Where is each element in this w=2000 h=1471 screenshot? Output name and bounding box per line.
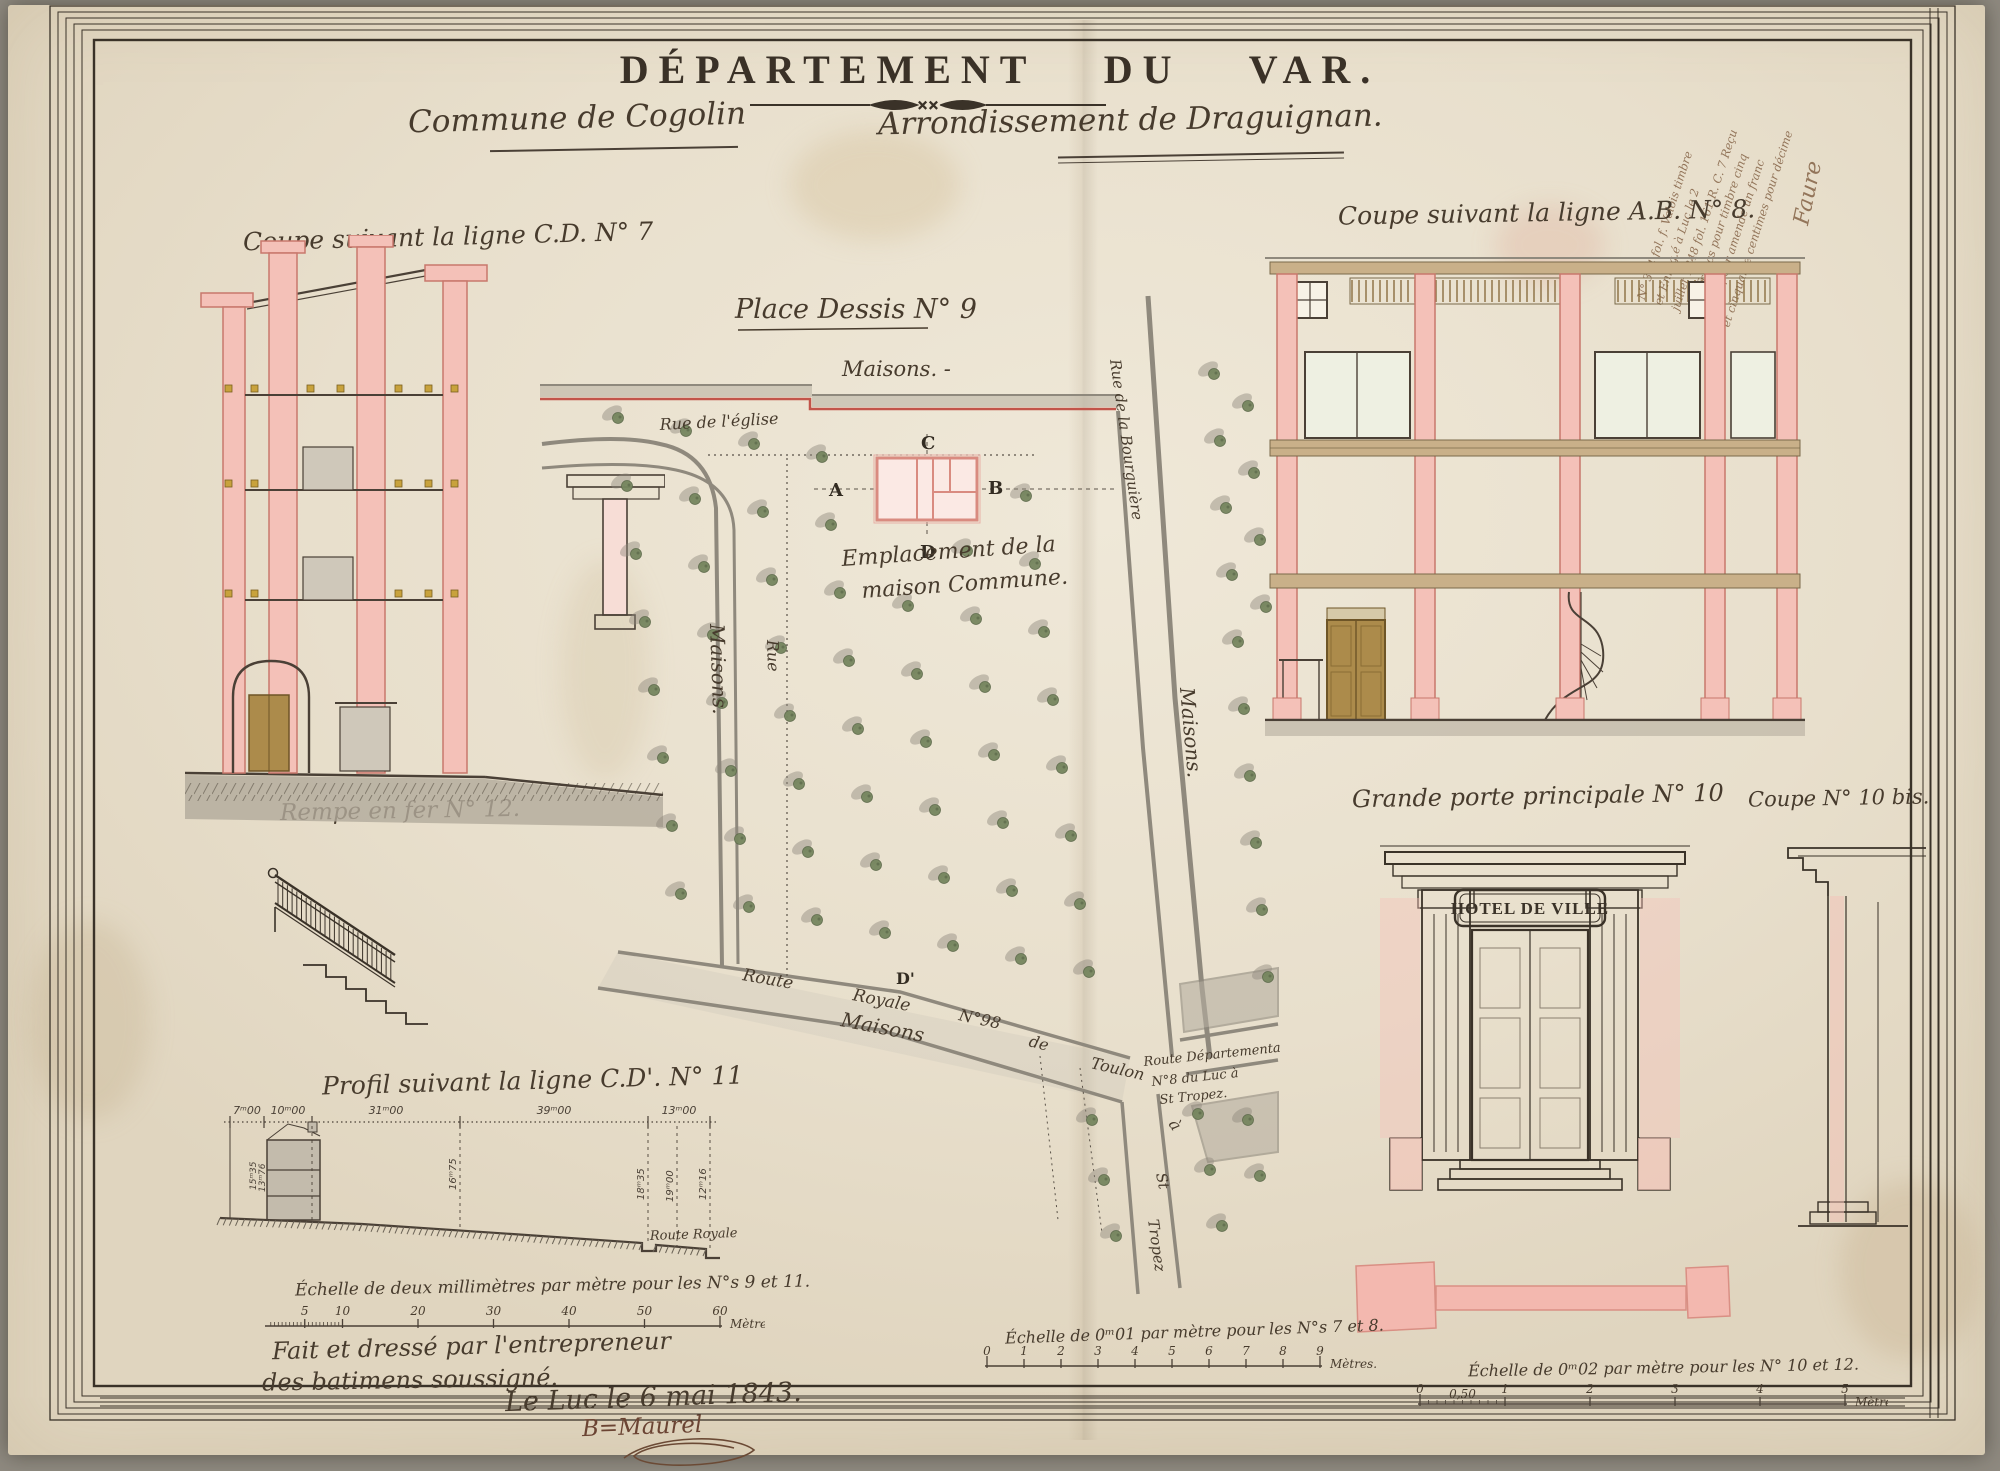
tree [1039, 627, 1050, 638]
tree [744, 902, 755, 913]
tree [1227, 570, 1238, 581]
tree [640, 617, 651, 628]
joist-square [225, 480, 232, 487]
scale-unit: Mètres. [1854, 1395, 1888, 1409]
tree [1111, 1231, 1122, 1242]
scale-tick-label: 30 [486, 1304, 502, 1318]
iron-railing-drawing [248, 832, 433, 1027]
tree [803, 847, 814, 858]
scale-tick-label: 4 [1755, 1382, 1764, 1396]
tree [767, 575, 778, 586]
left-pilaster [1418, 890, 1474, 1160]
tree [903, 601, 914, 612]
tree [613, 413, 624, 424]
tree [930, 805, 941, 816]
tree [631, 549, 642, 560]
foundation-plan-drawing [1348, 1248, 1778, 1348]
joist-square [251, 590, 258, 597]
dim-label-v: 19ᵐ00 [665, 1170, 676, 1202]
scale-tick-label: 2 [1585, 1382, 1594, 1396]
scale-tick-label: 5 [1841, 1382, 1849, 1396]
dim-label-v: 12ᵐ16 [698, 1168, 709, 1200]
scale-tick-label: 60 [712, 1304, 728, 1318]
dim-label: 31ᵐ00 [369, 1104, 404, 1117]
tree [912, 669, 923, 680]
dim-label-v: 16ᵐ75 [448, 1158, 459, 1190]
scale-tick-label: 40 [560, 1304, 577, 1318]
right-pilaster [1586, 890, 1642, 1160]
tree [921, 737, 932, 748]
tree [1057, 763, 1068, 774]
tree [1263, 972, 1274, 983]
tree [1255, 535, 1266, 546]
scale-tick-label: 5 [1168, 1344, 1176, 1358]
tree [871, 860, 882, 871]
tree [1075, 899, 1086, 910]
dim-label: 7ᵐ00 [233, 1104, 261, 1117]
building-footprint [874, 455, 980, 523]
ground-shadow [1265, 722, 1805, 736]
emplacement-line2: maison Commune. [861, 565, 1069, 604]
page-title: DÉPARTEMENT DU VAR. [0, 46, 2000, 93]
scale-tick-label: 8 [1279, 1344, 1287, 1358]
tree [1048, 695, 1059, 706]
tree [699, 562, 710, 573]
tree [785, 711, 796, 722]
scale-tick-label: 50 [637, 1304, 653, 1318]
tree [835, 588, 846, 599]
scale-tick-label: 9 [1316, 1344, 1324, 1358]
joist-square [395, 385, 402, 392]
tree [948, 941, 959, 952]
tree [1016, 954, 1027, 965]
tree [676, 889, 687, 900]
tree [1084, 967, 1095, 978]
tree [794, 779, 805, 790]
joist-square [225, 590, 232, 597]
tree [1221, 503, 1232, 514]
tree [726, 766, 737, 777]
pink-wash [1830, 896, 1844, 1222]
tree [649, 685, 660, 696]
tree [1261, 602, 1272, 613]
tree [1239, 704, 1250, 715]
tree [1251, 838, 1262, 849]
scale-tick-label: 0 [983, 1344, 991, 1358]
rue-eglise-label: Rue de l'église [658, 409, 779, 434]
dim-label: 13ᵐ00 [662, 1104, 697, 1117]
scale-tick-label: 4 [1130, 1344, 1139, 1358]
marker-d-prime: D' [896, 969, 915, 988]
joist-square [451, 590, 458, 597]
scale-half-label: 0,50 [1449, 1387, 1476, 1401]
roof-band [1270, 262, 1800, 274]
door-section-drawing [1758, 842, 1933, 1262]
joist-square [451, 480, 458, 487]
dim-label-v: 18ᵐ35 [636, 1168, 647, 1200]
rue-left-label: Rue [763, 638, 783, 671]
label-coupe10bis: Coupe N° 10 bis. [1748, 784, 1930, 811]
tree [817, 452, 828, 463]
tree [1099, 1175, 1110, 1186]
joist-square [425, 590, 432, 597]
maisons-top-label: Maisons. - [841, 357, 951, 381]
tree [998, 818, 1009, 829]
scale-bar-7-8: 0123456789Mètres. [975, 1340, 1395, 1380]
maisons-left-label: Maisons. [705, 622, 732, 714]
marker-b: B [988, 478, 1003, 499]
joist-square [395, 590, 402, 597]
dim-label-v: 13ᵐ76 [258, 1163, 268, 1192]
main-door-elevation-drawing: HOTEL DE VILLE [1360, 838, 1700, 1258]
tree [735, 834, 746, 845]
dim-label: 39ᵐ00 [537, 1104, 572, 1117]
tree [1007, 886, 1018, 897]
scale-tick-label: 3 [1094, 1344, 1102, 1358]
tree [1243, 401, 1254, 412]
tree [1257, 905, 1268, 916]
tree [1233, 637, 1244, 648]
rue-bourguiere-label: Rue de la Bourguière [1106, 357, 1147, 521]
tree [812, 915, 823, 926]
tree [880, 928, 891, 939]
tree [690, 494, 701, 505]
profile-cd11-drawing: 7ᵐ00 10ᵐ00 31ᵐ00 39ᵐ00 13ᵐ00 15ᵐ35 13ᵐ76… [212, 1078, 752, 1293]
scale-bar-10-12: 0123450,50Mètres. [1408, 1378, 1888, 1418]
scale-tick-label: 6 [1205, 1344, 1213, 1358]
tree [1245, 771, 1256, 782]
tree [758, 507, 769, 518]
tree [1087, 1115, 1098, 1126]
scale-unit: Mètres. [729, 1317, 765, 1331]
marker-c: C [921, 433, 935, 454]
pink-base [1390, 1138, 1422, 1190]
tree [980, 682, 991, 693]
tree [667, 821, 678, 832]
tree [1243, 1115, 1254, 1126]
joist-square [451, 385, 458, 392]
plan-title: Place Dessis N° 9 [734, 294, 977, 325]
route-word: Tropez [1144, 1218, 1169, 1273]
walls [201, 265, 487, 773]
dim-label: 10ᵐ00 [271, 1104, 306, 1117]
tree [1205, 1165, 1216, 1176]
joist-square [425, 480, 432, 487]
tree [844, 656, 855, 667]
joist-square [251, 385, 258, 392]
scale-tick-label: 1 [1020, 1344, 1028, 1358]
tree [971, 614, 982, 625]
scale-tick-label: 2 [1056, 1344, 1065, 1358]
tree [989, 750, 1000, 761]
route-word: à [1165, 1115, 1186, 1134]
tree [1217, 1221, 1228, 1232]
tree [1193, 1109, 1204, 1120]
joist-square [251, 480, 258, 487]
route-dep-line1: Route Départementale [1142, 1039, 1280, 1070]
hotel-de-ville-sign: HOTEL DE VILLE [1451, 899, 1609, 918]
tree [622, 481, 633, 492]
scale-tick-label: 1 [1501, 1382, 1509, 1396]
marker-a: A [828, 480, 844, 501]
tree [1021, 491, 1032, 502]
tree [749, 439, 760, 450]
scale-tick-label: 7 [1242, 1344, 1250, 1358]
entry-door [1327, 608, 1385, 720]
signature-flourish [612, 1428, 782, 1470]
tree [1066, 831, 1077, 842]
joist-square [395, 480, 402, 487]
scale-tick-label: 10 [335, 1304, 351, 1318]
plan-title-underline [738, 328, 928, 330]
joist-square [425, 385, 432, 392]
tree [862, 792, 873, 803]
tree [826, 520, 837, 531]
scanned-plan-sheet: DÉPARTEMENT DU VAR. ✕✕ Commune de Cogoli… [0, 0, 2000, 1471]
scale-tick-label: 0 [1416, 1382, 1424, 1396]
pink-wash [1640, 898, 1680, 1138]
chimney [261, 235, 393, 773]
joist-square [337, 385, 344, 392]
tree [1249, 468, 1260, 479]
top-street [540, 385, 1120, 409]
tree [1209, 369, 1220, 380]
joist-square [307, 385, 314, 392]
tree [1215, 436, 1226, 447]
building-section-ab8-drawing [1265, 252, 1805, 752]
scale-tick-label: 3 [1671, 1382, 1679, 1396]
pink-base [1638, 1138, 1670, 1190]
route-royale-profile-label: Route Royale [649, 1226, 738, 1244]
tree [1255, 1171, 1266, 1182]
tree [853, 724, 864, 735]
scale-tick-label: 20 [409, 1304, 426, 1318]
tree [939, 873, 950, 884]
scale-tick-label: 5 [301, 1304, 309, 1318]
pink-wash [1380, 898, 1420, 1138]
tree [658, 753, 669, 764]
scale-unit: Mètres. [1329, 1357, 1377, 1371]
joist-square [225, 385, 232, 392]
